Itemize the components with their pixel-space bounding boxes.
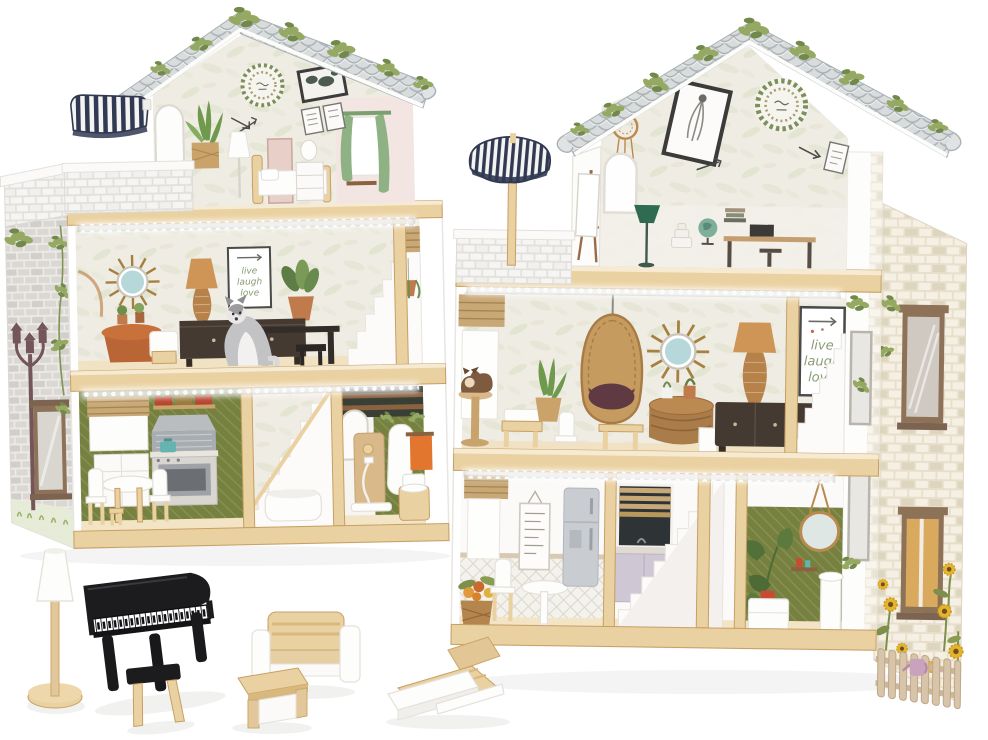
product-photo-dollhouse: live laugh love (0, 0, 988, 740)
dollhouse-scene: live laugh love (0, 0, 988, 740)
svg-text:live: live (811, 338, 834, 353)
toy-toilet (399, 474, 430, 521)
living-room-post (393, 218, 408, 364)
roman-blind-and-window (457, 294, 505, 419)
side-window-upper (897, 305, 949, 431)
right-house-shadow (465, 670, 945, 694)
easel-wall (571, 146, 601, 266)
accessory-coffee-table (232, 668, 312, 734)
dollhouse-right-view: live laugh love (447, 13, 971, 709)
accessory-floor-lamp (27, 548, 85, 714)
left-living-room: live laugh love (75, 218, 422, 371)
side-window-lower (896, 507, 948, 621)
svg-text:laugh: laugh (237, 277, 263, 288)
rg-post-1 (603, 472, 616, 626)
right-house-side-wall (869, 202, 969, 709)
left-house-shadow (20, 546, 450, 566)
rg-post-3 (734, 474, 747, 628)
toy-armchair (150, 331, 179, 364)
svg-text:live: live (241, 266, 258, 276)
toy-white-cabinet (699, 428, 717, 452)
toy-washbasin (818, 572, 843, 636)
dollhouse-left-view: live laugh love (0, 3, 449, 550)
left-ground-floor (79, 384, 436, 531)
chalkboard-print (519, 491, 550, 569)
fridge-print (563, 488, 599, 586)
right-living-room: live laugh love (457, 292, 846, 455)
live-laugh-love-poster-left: live laugh love (228, 247, 271, 308)
living-post (785, 297, 799, 453)
rg-post-2 (696, 474, 710, 628)
ground-post-2 (331, 386, 345, 526)
ground-post-1 (241, 388, 255, 528)
right-ground-floor (456, 470, 844, 637)
column-window-lower (848, 472, 869, 560)
attic-arch-window (604, 153, 637, 212)
striped-awning (71, 94, 152, 139)
kitchen-window (87, 395, 150, 451)
towel-print (410, 436, 433, 470)
accessory-grand-piano (79, 570, 226, 720)
accessory-sun-lounger (386, 637, 510, 729)
